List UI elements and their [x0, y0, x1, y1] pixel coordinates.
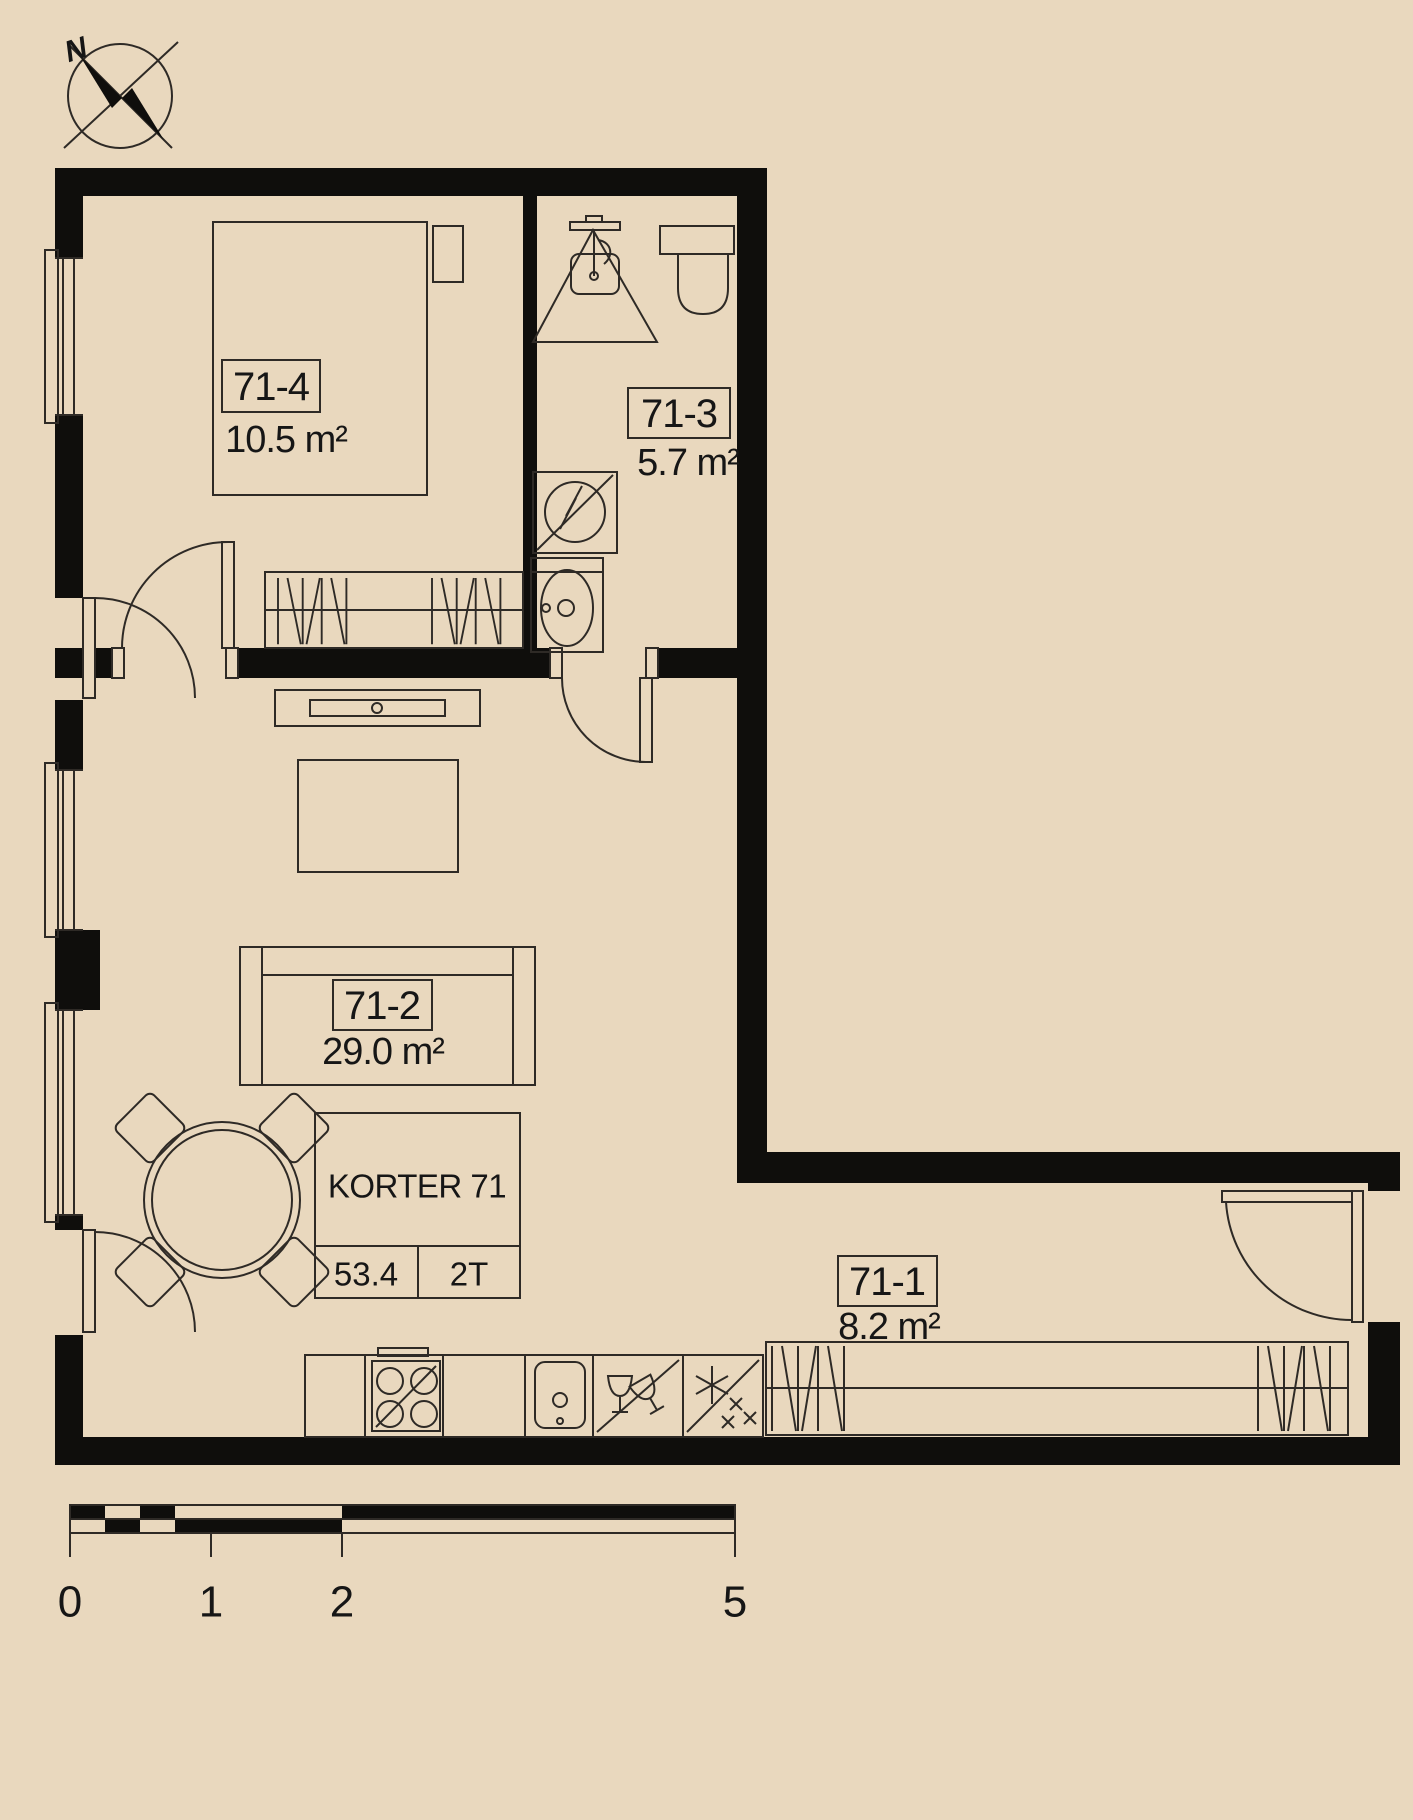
kitchen-sink-icon: [535, 1362, 585, 1428]
entrance-door: [1222, 1191, 1363, 1322]
unit-title: KORTER 71: [328, 1168, 506, 1205]
scale-tick-0: 0: [58, 1578, 82, 1627]
unit-room-count: 2T: [450, 1256, 489, 1293]
scale-tick-1: 1: [199, 1578, 223, 1627]
bathroom-sink-icon: [531, 558, 603, 652]
room-area-71-2: 29.0 m²: [322, 1031, 444, 1073]
bedroom-door: [112, 542, 238, 678]
scale-tick-2: 2: [330, 1578, 354, 1627]
bathroom-door: [550, 648, 658, 762]
unit-total-area: 53.4: [334, 1256, 398, 1293]
freezer-icon: [687, 1360, 759, 1432]
bedroom-wardrobe: [265, 572, 523, 648]
room-id-71-3: 71-3: [641, 392, 717, 436]
stove-icon: [372, 1348, 440, 1431]
hall-wardrobe: [766, 1342, 1348, 1435]
dining-table: [144, 1122, 300, 1278]
room-area-71-3: 5.7 m²: [637, 442, 739, 484]
dining-chairs: [113, 1091, 331, 1309]
room-id-71-4: 71-4: [233, 365, 310, 409]
room-label-71-1: 71-1 8.2 m²: [838, 1256, 940, 1348]
washing-machine-icon: [533, 472, 617, 553]
window-living-upper: [45, 763, 83, 937]
room-id-71-2: 71-2: [344, 984, 420, 1028]
window-living-lower: [45, 1003, 83, 1222]
room-label-71-3: 71-3 5.7 m²: [628, 388, 739, 484]
coffee-table: [298, 760, 458, 872]
scale-tick-5: 5: [723, 1578, 747, 1627]
floor-plan-drawing: 71-4 10.5 m² 71-3 5.7 m² 71-2 29.0 m² 71…: [0, 0, 1413, 1820]
compass-icon: N: [61, 31, 178, 148]
tv-unit: [275, 690, 480, 726]
toilet-icon: [660, 226, 734, 314]
room-area-71-4: 10.5 m²: [225, 419, 347, 461]
dishwasher-icon: [597, 1360, 679, 1432]
unit-info-table: KORTER 71 53.4 2T: [315, 1113, 520, 1298]
room-label-71-2: 71-2 29.0 m²: [322, 980, 444, 1073]
shower-icon: [533, 216, 657, 342]
floor-plan-page: 71-4 10.5 m² 71-3 5.7 m² 71-2 29.0 m² 71…: [0, 0, 1413, 1820]
room-label-71-4: 71-4 10.5 m²: [222, 360, 347, 461]
room-id-71-1: 71-1: [849, 1260, 925, 1304]
scale-bar: 0 1 2 5: [58, 1505, 747, 1627]
room-area-71-1: 8.2 m²: [838, 1306, 940, 1348]
window-bedroom: [45, 250, 83, 423]
compass-north-label: N: [61, 31, 93, 69]
